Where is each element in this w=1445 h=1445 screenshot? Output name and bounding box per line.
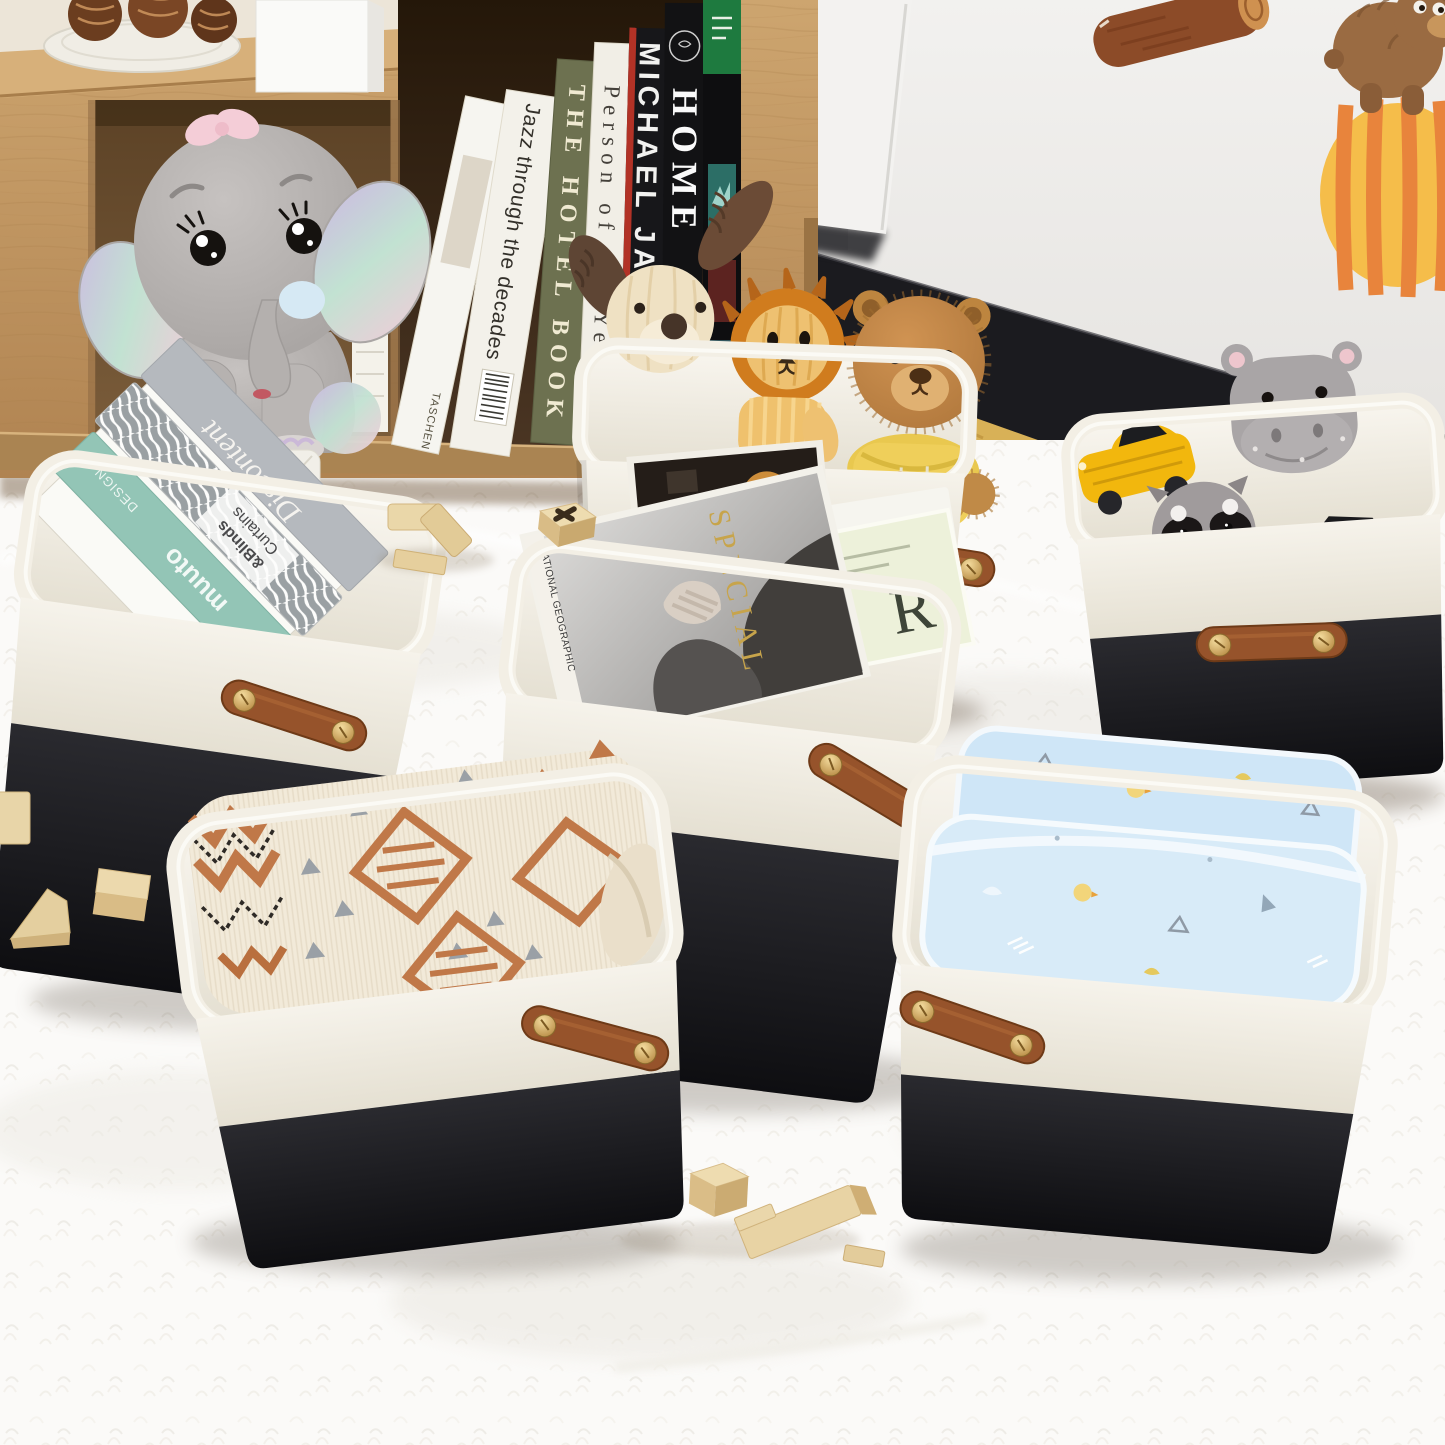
- blanket-basket-bottom-left: [166, 732, 721, 1273]
- cube-block-left: [0, 792, 30, 844]
- scene: TASCHEN Jazz through the decades THE HOT…: [0, 0, 1445, 1445]
- pinecones: [68, 0, 237, 43]
- leather-handle: [1196, 623, 1347, 662]
- blue-nose-fluff: [279, 281, 325, 319]
- square-block: [93, 869, 151, 922]
- book-home-title: HOME: [664, 88, 705, 238]
- white-box: [256, 0, 384, 92]
- bear-on-ball-decal: [1320, 0, 1445, 297]
- playroom-photo: TASCHEN Jazz through the decades THE HOT…: [0, 0, 1445, 1445]
- pinecone-plate: [44, 0, 240, 72]
- blanket-basket-bottom-right: [877, 722, 1396, 1258]
